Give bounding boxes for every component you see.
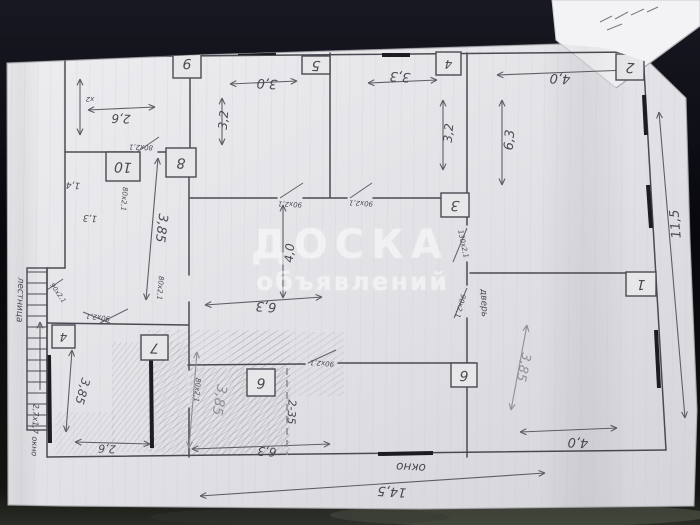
dimension-label: 2,6 — [111, 111, 131, 126]
dimension-label: 6,3 — [257, 444, 277, 459]
dimension-label: 3,2 — [441, 123, 457, 143]
room-number: 4 — [444, 57, 452, 71]
dimension-label: 3,2 — [216, 110, 232, 130]
floor-plan-drawing: 95421083174662,63,03,23,33,24,06,311,53,… — [0, 0, 700, 525]
dimension-label: 90x2,1 — [278, 199, 303, 208]
room-number: 6 — [256, 374, 266, 390]
window-mark — [151, 358, 152, 448]
window-mark — [644, 95, 646, 135]
dimension-label: 2-35 — [285, 399, 299, 424]
room-number-box: 1 — [626, 272, 656, 296]
room-number: 10 — [114, 158, 132, 175]
wall-line — [188, 364, 305, 365]
dimension-label: 90x2,1 — [310, 358, 335, 368]
dimension-label: 3,0 — [256, 75, 277, 91]
dimension-label: 1,3 — [82, 212, 97, 223]
window-mark — [49, 355, 50, 443]
dimension-label: 6,3 — [502, 129, 519, 151]
window-mark — [378, 453, 433, 454]
room-number: 8 — [176, 154, 186, 170]
room-number-box: 3 — [441, 193, 469, 217]
room-number: 5 — [311, 57, 321, 73]
room-number: 6 — [459, 367, 469, 383]
dimension-label: дверь — [478, 288, 489, 317]
dimension-label: окно — [396, 460, 426, 476]
room-number-box: 10 — [106, 152, 140, 181]
room-number-box: 7 — [141, 335, 168, 360]
dimension-label: 14,5 — [377, 483, 407, 500]
room-number-box: 4 — [436, 52, 461, 75]
room-number: 1 — [636, 276, 645, 292]
dimension-label: 4,0 — [282, 242, 298, 263]
room-number-box: 5 — [302, 56, 330, 74]
room-number-box: 4 — [52, 325, 75, 348]
dimension-label: 11,5 — [667, 209, 684, 239]
dimension-label: 2,6 — [98, 442, 116, 456]
room-number: 3 — [450, 197, 459, 213]
photo-of-floor-plan-sheet: 95421083174662,63,03,23,33,24,06,311,53,… — [0, 0, 700, 525]
room-number-box: 6 — [451, 363, 477, 387]
dimension-label: 6,3 — [255, 298, 277, 314]
dimension-label: 1,4 — [65, 179, 80, 190]
dimension-label: x2 — [85, 95, 95, 103]
dimension-label: 90x2,1 — [349, 198, 374, 207]
room-number-box: 8 — [166, 148, 196, 177]
dimension-label: 80x2,1 — [129, 143, 153, 152]
room-number: 7 — [150, 339, 160, 355]
room-number: 9 — [182, 55, 192, 71]
room-number-box: 6 — [247, 369, 275, 396]
dimension-label: 3,3 — [389, 68, 411, 84]
room-number: 4 — [59, 330, 67, 344]
